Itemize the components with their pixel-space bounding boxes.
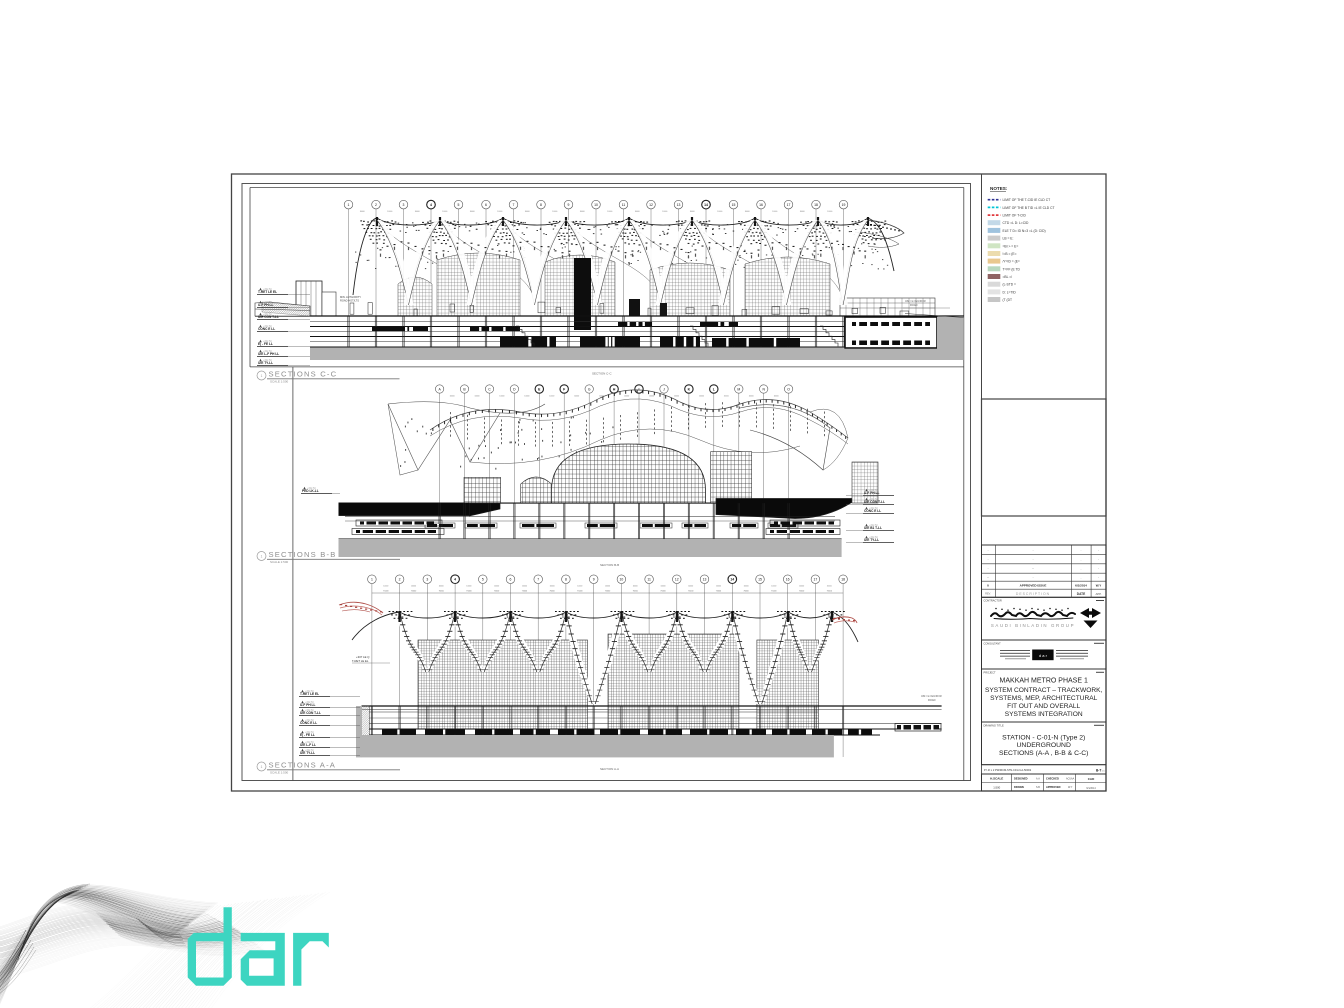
svg-text:9: 9 — [568, 203, 570, 207]
svg-text:10000: 10000 — [411, 586, 416, 588]
svg-text:10000: 10000 — [552, 211, 557, 213]
svg-text:10: 10 — [594, 203, 598, 207]
svg-text:10000: 10000 — [607, 211, 612, 213]
svg-text:10000: 10000 — [383, 586, 388, 588]
svg-text:I: I — [639, 387, 640, 391]
svg-text:REV.: REV. — [985, 592, 991, 596]
svg-text:U/E TY-LL: U/E TY-LL — [300, 751, 315, 755]
svg-text:10000: 10000 — [744, 586, 749, 588]
svg-text:-: - — [1033, 576, 1034, 579]
svg-text:10000: 10000 — [662, 211, 667, 213]
svg-text:2: 2 — [399, 578, 401, 582]
svg-text:APP.: APP. — [1095, 592, 1101, 596]
svg-text:10000: 10000 — [674, 395, 679, 397]
svg-text:6/1/2014: 6/1/2014 — [1075, 584, 1087, 588]
svg-text:CONSULTANT: CONSULTANT — [984, 641, 1002, 645]
svg-text:SECTION B-B: SECTION B-B — [600, 563, 619, 567]
svg-text:10000: 10000 — [690, 211, 695, 213]
svg-text:11: 11 — [622, 203, 626, 207]
svg-text:!=B = (E=: !=B = (E= — [1003, 252, 1017, 256]
svg-text:U/E CON T-LL: U/E CON T-LL — [864, 500, 885, 504]
svg-text:75000: 75000 — [633, 591, 638, 593]
svg-text:-: - — [1098, 549, 1099, 552]
svg-text:10000: 10000 — [522, 586, 527, 588]
svg-text:10000: 10000 — [525, 211, 530, 213]
svg-text:75000: 75000 — [799, 591, 804, 593]
svg-text:-: - — [1033, 549, 1034, 552]
svg-text:9: 9 — [593, 578, 595, 582]
svg-text:10000: 10000 — [550, 586, 555, 588]
svg-text:SECTIONS A-A: SECTIONS A-A — [269, 761, 337, 770]
svg-text:1: 1 — [371, 578, 373, 582]
svg-text:75000: 75000 — [494, 591, 499, 593]
svg-text:19: 19 — [842, 203, 846, 207]
svg-text:75000: 75000 — [577, 591, 582, 593]
svg-text:LIMIT OF THE B TID =L IE CLD: LIMIT OF THE B TID =L IE CLD CT — [1003, 206, 1055, 210]
svg-text:SYSTEMS, MEP, ARCHITECTURAL: SYSTEMS, MEP, ARCHITECTURAL — [990, 695, 1098, 702]
svg-text:M: M — [737, 387, 740, 391]
svg-text:MAKKAH METRO PHASE 1: MAKKAH METRO PHASE 1 — [1000, 678, 1088, 685]
svg-text:15: 15 — [732, 203, 736, 207]
svg-text:U/E L-F PH LL: U/E L-F PH LL — [258, 352, 279, 356]
svg-text:CONC E LL: CONC E LL — [258, 327, 275, 331]
svg-text:T-RET LE EL: T-RET LE EL — [352, 659, 369, 663]
svg-text:SYSTEM CONTRACT – TRACKWORK,: SYSTEM CONTRACT – TRACKWORK, — [985, 687, 1103, 694]
svg-text:DRAWING TITLE: DRAWING TITLE — [984, 723, 1004, 727]
svg-text:7: 7 — [537, 578, 539, 582]
svg-text:STATION - C-01-N (Type 2): STATION - C-01-N (Type 2) — [1002, 734, 1085, 741]
svg-text:75000: 75000 — [466, 591, 471, 593]
svg-text:SAUDI BINLADIN GROUP: SAUDI BINLADIN GROUP — [991, 623, 1075, 628]
svg-text:W.Y: W.Y — [1068, 786, 1073, 789]
svg-text:18: 18 — [841, 578, 845, 582]
svg-text:O: O — [787, 387, 790, 391]
svg-text:..: .. — [1080, 576, 1082, 579]
svg-text:L: L — [713, 387, 715, 391]
svg-text:SECTIONS (A-A , B-B & C-C): SECTIONS (A-A , B-B & C-C) — [999, 750, 1089, 757]
svg-text:75000: 75000 — [716, 591, 721, 593]
svg-text:17: 17 — [787, 203, 791, 207]
svg-text:10000: 10000 — [475, 395, 480, 397]
svg-text:..: .. — [1080, 558, 1082, 561]
svg-text:13: 13 — [677, 203, 681, 207]
svg-text:6/1/2014: 6/1/2014 — [1086, 787, 1096, 790]
svg-text:FIT OUT AND OVERALL: FIT OUT AND OVERALL — [1007, 703, 1080, 710]
svg-text:10000: 10000 — [499, 395, 504, 397]
svg-text:SECTIONS C-C: SECTIONS C-C — [269, 370, 338, 379]
svg-text:10000: 10000 — [524, 395, 529, 397]
svg-text:CONTRACTOR: CONTRACTOR — [984, 599, 1002, 603]
svg-text:U/E B1 T-LL: U/E B1 T-LL — [864, 526, 882, 530]
svg-text:ROAD: ROAD — [928, 698, 936, 702]
svg-text:75000: 75000 — [605, 591, 610, 593]
svg-text:1: 1 — [261, 374, 263, 378]
svg-text:T=FF (E TD: T=FF (E TD — [1003, 267, 1021, 271]
svg-text:DESCRIPTION: DESCRIPTION — [1016, 592, 1050, 596]
svg-text:MIN. AUTHORITY: MIN. AUTHORITY — [340, 295, 361, 299]
svg-text:ROAD: ROAD — [910, 303, 918, 307]
svg-text:10000: 10000 — [450, 395, 455, 397]
svg-text:SCALE 1:500: SCALE 1:500 — [270, 771, 289, 775]
svg-text:11: 11 — [647, 578, 651, 582]
svg-text:10000: 10000 — [497, 211, 502, 213]
svg-text:10000: 10000 — [716, 586, 721, 588]
svg-text:LIMIT OF T-CID: LIMIT OF T-CID — [1003, 214, 1027, 218]
svg-text:U/E L-F LL: U/E L-F LL — [300, 743, 316, 747]
svg-text:17: 17 — [814, 578, 818, 582]
svg-text:E( - FE LL: E( - FE LL — [300, 733, 315, 737]
svg-text:F: F — [563, 387, 565, 391]
svg-text:6: 6 — [510, 578, 512, 582]
svg-text:ACUAA: ACUAA — [1066, 778, 1075, 781]
svg-text:10000: 10000 — [580, 211, 585, 213]
svg-text:APPROVED ISSUE: APPROVED ISSUE — [1020, 584, 1047, 588]
svg-text:SECTIONS B-B: SECTIONS B-B — [269, 550, 337, 559]
svg-text:T-RET LE EL: T-RET LE EL — [300, 692, 319, 696]
svg-text:75000: 75000 — [688, 591, 693, 593]
svg-text:DATE: DATE — [1077, 592, 1085, 596]
svg-text:75000: 75000 — [522, 591, 527, 593]
svg-text:10000: 10000 — [415, 211, 420, 213]
svg-text:4: 4 — [454, 578, 456, 582]
svg-text:16: 16 — [786, 578, 790, 582]
svg-text:H.SCALE: H.SCALE — [990, 777, 1003, 781]
svg-text:14: 14 — [704, 203, 708, 207]
svg-text:NOTES:: NOTES: — [990, 186, 1008, 191]
svg-text:1:1: 1:1 — [1102, 771, 1106, 773]
svg-text:U/E CON T-LL: U/E CON T-LL — [300, 711, 321, 715]
svg-text:10000: 10000 — [688, 586, 693, 588]
svg-text:10000: 10000 — [772, 211, 777, 213]
svg-text:12: 12 — [649, 203, 653, 207]
svg-text:75000: 75000 — [549, 591, 554, 593]
svg-text:10000: 10000 — [633, 586, 638, 588]
svg-text:SCALE 1:500: SCALE 1:500 — [270, 380, 289, 384]
svg-text:10000: 10000 — [699, 395, 704, 397]
svg-text:DRAWN: DRAWN — [1014, 785, 1024, 789]
svg-text:3: 3 — [426, 578, 428, 582]
svg-text:0: 0 — [987, 584, 989, 588]
svg-text:U/E TY-LL: U/E TY-LL — [258, 361, 273, 365]
svg-text:5: 5 — [458, 203, 460, 207]
svg-text:ELE T D= ID N=3 =L (D: CID): ELE T D= ID N=3 =L (D: CID) — [1003, 229, 1046, 233]
svg-text:10000: 10000 — [494, 586, 499, 588]
svg-text:E( - FE LL: E( - FE LL — [258, 342, 273, 346]
svg-text:10000: 10000 — [745, 211, 750, 213]
svg-text:75000: 75000 — [771, 591, 776, 593]
svg-text:(L-STD =: (L-STD = — [1003, 283, 1017, 287]
svg-text:(T (DT: (T (DT — [1003, 298, 1012, 302]
svg-text:=BL =/: =BL =/ — [1003, 275, 1013, 279]
svg-text:J: J — [663, 387, 665, 391]
svg-text:10000: 10000 — [661, 586, 666, 588]
svg-text:--: -- — [987, 576, 989, 579]
svg-text:-: - — [1098, 558, 1099, 561]
svg-text:d a r: d a r — [1039, 653, 1048, 658]
svg-text:UNDERGROUND: UNDERGROUND — [1017, 742, 1071, 749]
svg-text:G: G — [588, 387, 591, 391]
svg-text:10000: 10000 — [749, 395, 754, 397]
svg-text:PED LK-LL: PED LK-LL — [302, 489, 319, 493]
svg-text:CAD: CAD — [1088, 777, 1095, 781]
svg-text:-: - — [1098, 568, 1099, 571]
svg-text:-: - — [988, 568, 989, 571]
svg-text:-: - — [1098, 576, 1099, 579]
svg-text:10000: 10000 — [605, 586, 610, 588]
svg-text:-: - — [988, 549, 989, 552]
svg-text:1:500: 1:500 — [993, 786, 1000, 790]
svg-text:SECTION A-A: SECTION A-A — [600, 767, 619, 771]
svg-text:APPROVED: APPROVED — [1046, 785, 1061, 789]
svg-text:10000: 10000 — [439, 586, 444, 588]
svg-text:16: 16 — [759, 203, 763, 207]
svg-text:T-RET LE EL: T-RET LE EL — [258, 290, 277, 294]
svg-text:SYSTEMS INTEGRATION: SYSTEMS INTEGRATION — [1005, 711, 1083, 718]
svg-text:10000: 10000 — [827, 211, 832, 213]
svg-text:10000: 10000 — [442, 211, 447, 213]
svg-text:8: 8 — [540, 203, 542, 207]
svg-text:CTD =L D: L=CID: CTD =L D: L=CID — [1003, 221, 1030, 225]
svg-text:75000: 75000 — [383, 591, 388, 593]
svg-text:10000: 10000 — [649, 395, 654, 397]
svg-text:..: .. — [1080, 568, 1082, 571]
svg-text:U-F PH LL: U-F PH LL — [300, 703, 315, 707]
svg-text:5: 5 — [482, 578, 484, 582]
svg-text:1: 1 — [261, 765, 263, 769]
svg-text:SCALE 1:500: SCALE 1:500 — [270, 560, 289, 564]
svg-text:S.B: S.B — [1036, 786, 1040, 789]
svg-text:14: 14 — [730, 578, 734, 582]
svg-text:75000: 75000 — [439, 591, 444, 593]
svg-text:10000: 10000 — [800, 211, 805, 213]
svg-text:75000: 75000 — [743, 591, 748, 593]
svg-text:8: 8 — [565, 578, 567, 582]
svg-text:CONC E LL: CONC E LL — [300, 721, 317, 725]
svg-text:1: 1 — [348, 203, 350, 207]
svg-text:10: 10 — [620, 578, 624, 582]
svg-text:10000: 10000 — [799, 586, 804, 588]
svg-text:..: .. — [1080, 549, 1082, 552]
svg-text:W.Y: W.Y — [1096, 584, 1102, 588]
svg-text:10000: 10000 — [771, 586, 776, 588]
svg-text:75000: 75000 — [411, 591, 416, 593]
svg-text:SECTION C-C: SECTION C-C — [592, 372, 612, 376]
svg-text:10000: 10000 — [827, 586, 832, 588]
svg-text:U-F PH LL: U-F PH LL — [258, 303, 273, 307]
svg-text:U/E CON T-LL: U/E CON T-LL — [258, 315, 279, 319]
svg-text:/Y=ID = (E=: /Y=ID = (E= — [1003, 260, 1020, 264]
svg-text:U-F PH LL: U-F PH LL — [864, 491, 879, 495]
svg-text:13: 13 — [703, 578, 707, 582]
svg-text:-: - — [988, 558, 989, 561]
svg-text:=BI > = E=: =BI > = E= — [1003, 244, 1019, 248]
svg-text:10000: 10000 — [360, 211, 365, 213]
svg-text:10000: 10000 — [635, 211, 640, 213]
svg-text:10000: 10000 — [717, 211, 722, 213]
svg-text:-: - — [1033, 558, 1034, 561]
svg-text:18: 18 — [814, 203, 818, 207]
svg-text:ROAD HGT/LTS: ROAD HGT/LTS — [340, 299, 359, 303]
svg-text:75000: 75000 — [827, 591, 832, 593]
svg-text:3: 3 — [403, 203, 405, 207]
svg-text:75000: 75000 — [660, 591, 665, 593]
svg-text:4: 4 — [430, 203, 432, 207]
svg-text:U/E TY-LL: U/E TY-LL — [864, 538, 879, 542]
svg-text:PROJECT: PROJECT — [984, 670, 997, 674]
svg-text:P:\ 3\ L 2 PW\MCM-STN-C01-N-A: P:\ 3\ L 2 PW\MCM-STN-C01-N-A-50002 — [984, 768, 1032, 772]
svg-text:10000: 10000 — [549, 395, 554, 397]
svg-text:D: L=TID: D: L=TID — [1003, 290, 1017, 294]
svg-text:LB = E:: LB = E: — [1003, 237, 1014, 241]
svg-text:10000: 10000 — [466, 586, 471, 588]
svg-text:UM =L=GU/R=R: UM =L=GU/R=R — [921, 694, 942, 698]
svg-text:10000: 10000 — [470, 211, 475, 213]
svg-text:15: 15 — [758, 578, 762, 582]
svg-text:10000: 10000 — [387, 211, 392, 213]
svg-text:--: -- — [1032, 568, 1034, 571]
svg-text:10000: 10000 — [574, 395, 579, 397]
svg-text:CHECKED: CHECKED — [1046, 777, 1059, 781]
svg-text:10000: 10000 — [624, 395, 629, 397]
svg-text:12: 12 — [675, 578, 679, 582]
svg-text:10000: 10000 — [577, 586, 582, 588]
svg-text:7: 7 — [513, 203, 515, 207]
svg-text:1: 1 — [261, 555, 263, 559]
svg-text:10000: 10000 — [724, 395, 729, 397]
svg-text:2: 2 — [375, 203, 377, 207]
svg-text:UM =L=GU/R=R: UM =L=GU/R=R — [905, 299, 926, 303]
svg-text:6: 6 — [485, 203, 487, 207]
svg-text:10000: 10000 — [774, 395, 779, 397]
svg-text:A.A: A.A — [1036, 778, 1040, 781]
svg-text:LIMIT OF THE T-CID IE CLD C: LIMIT OF THE T-CID IE CLD CT — [1003, 198, 1051, 202]
svg-text:CONC E LL: CONC E LL — [864, 509, 881, 513]
svg-text:DESIGNED: DESIGNED — [1014, 777, 1028, 781]
